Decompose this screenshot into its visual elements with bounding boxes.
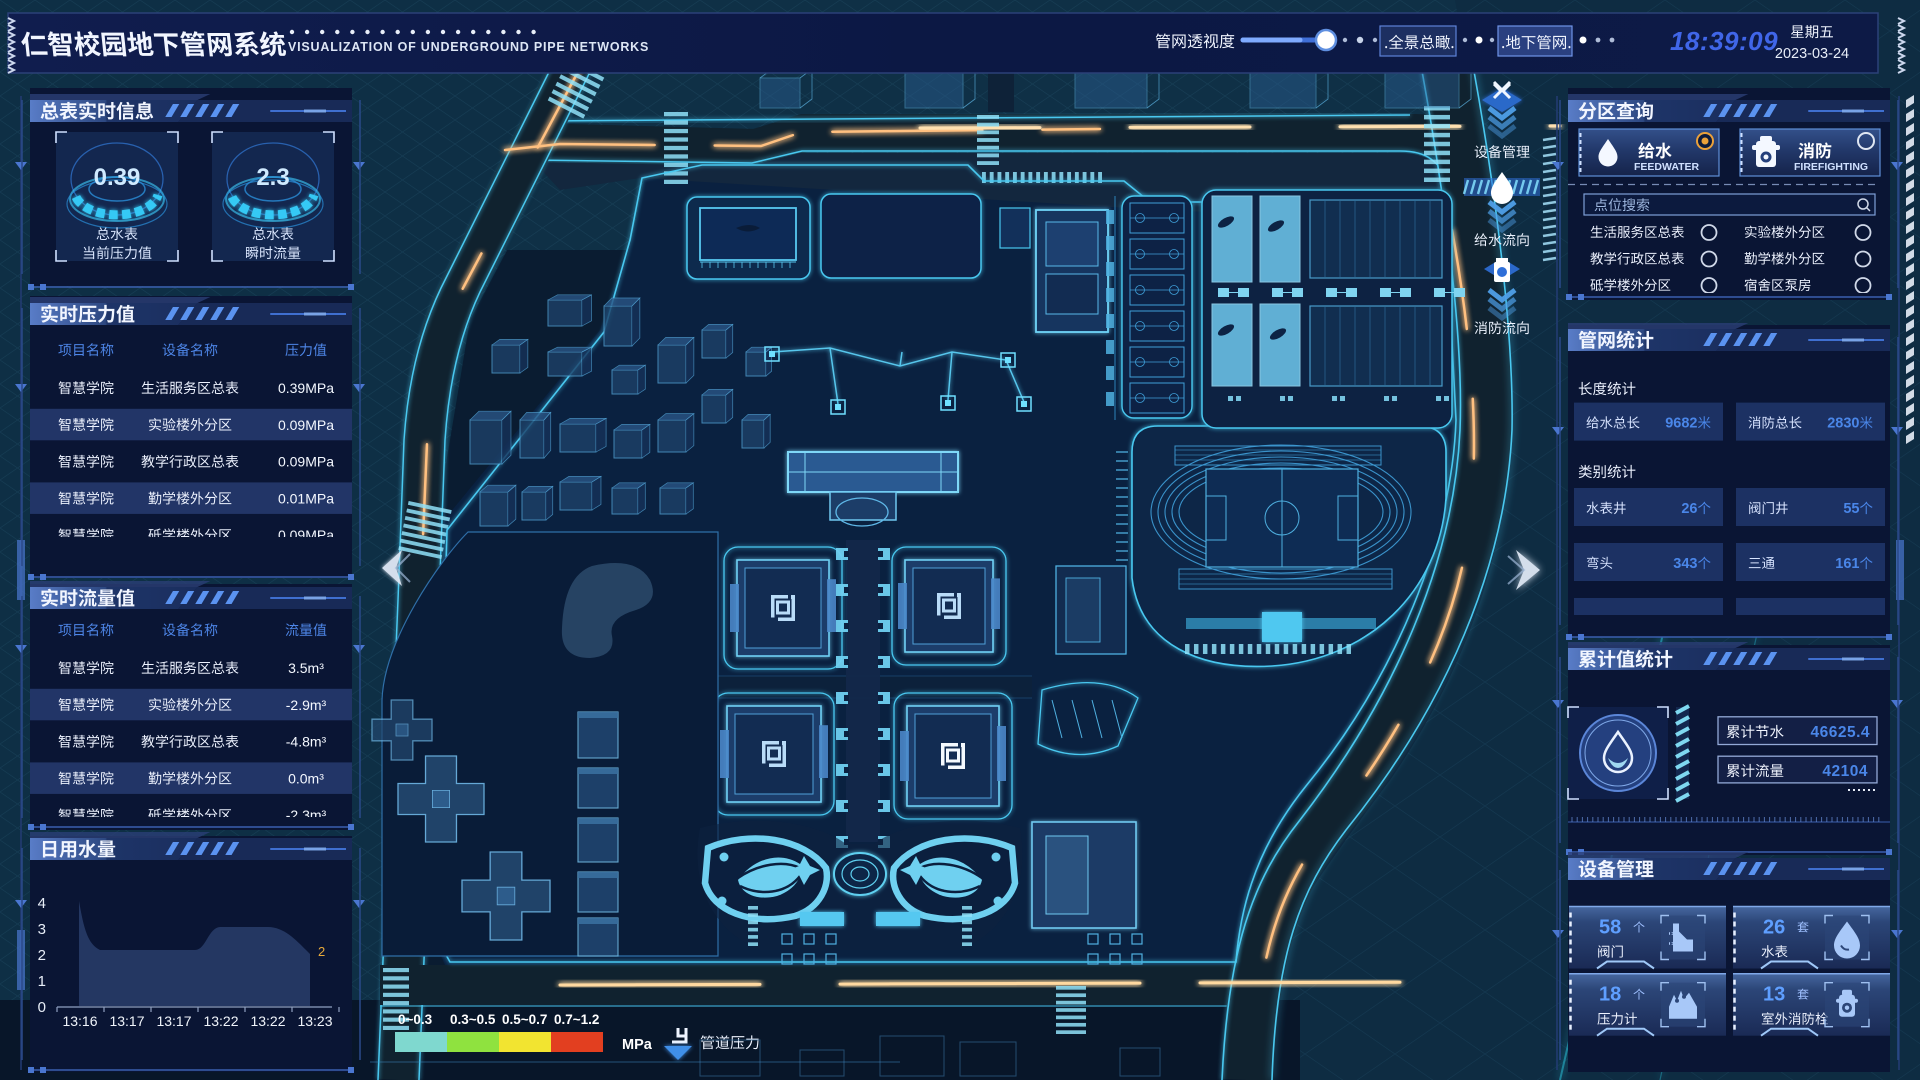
svg-text:55: 55	[1843, 501, 1859, 517]
svg-text:2: 2	[318, 944, 325, 959]
svg-text:0.7~1.2: 0.7~1.2	[554, 1012, 599, 1027]
svg-text:0.0m³: 0.0m³	[288, 770, 324, 786]
svg-text:0.09MPa: 0.09MPa	[278, 417, 334, 433]
svg-text:MPa: MPa	[622, 1037, 653, 1053]
svg-text:13:16: 13:16	[62, 1013, 97, 1029]
svg-text:13:17: 13:17	[109, 1013, 144, 1029]
svg-text:0.3~0.5: 0.3~0.5	[450, 1012, 496, 1027]
svg-text:3.5m³: 3.5m³	[288, 660, 324, 676]
svg-text:-4.8m³: -4.8m³	[286, 734, 327, 750]
svg-text:18: 18	[1599, 984, 1621, 1006]
svg-text:0.09MPa: 0.09MPa	[278, 454, 334, 470]
svg-text:13:23: 13:23	[297, 1013, 332, 1029]
svg-text:9682: 9682	[1665, 416, 1697, 432]
svg-text:18:39:09: 18:39:09	[1670, 26, 1778, 56]
svg-text:46625.4: 46625.4	[1810, 724, 1870, 741]
svg-text:3: 3	[38, 921, 46, 938]
svg-text:0~0.3: 0~0.3	[398, 1012, 433, 1027]
svg-text:2: 2	[38, 947, 46, 964]
svg-text:0.5~0.7: 0.5~0.7	[502, 1012, 547, 1027]
svg-text:161: 161	[1835, 556, 1859, 572]
svg-text:42104: 42104	[1822, 763, 1868, 780]
svg-text:13: 13	[1763, 984, 1785, 1006]
svg-text:26: 26	[1681, 501, 1697, 517]
svg-text:2023-03-24: 2023-03-24	[1775, 46, 1849, 62]
svg-text:0.01MPa: 0.01MPa	[278, 490, 334, 506]
svg-text:26: 26	[1763, 917, 1785, 939]
svg-text:13:22: 13:22	[250, 1013, 285, 1029]
svg-text:-2.9m³: -2.9m³	[286, 697, 327, 713]
svg-text:VISUALIZATION OF UNDERGROUND: VISUALIZATION OF UNDERGROUND PIPE NETWOR…	[288, 40, 649, 54]
svg-text:FEEDWATER: FEEDWATER	[1634, 161, 1700, 173]
svg-text:343: 343	[1673, 556, 1697, 572]
svg-text:1: 1	[38, 973, 46, 990]
svg-text:4: 4	[38, 895, 46, 912]
svg-text:13:22: 13:22	[203, 1013, 238, 1029]
svg-text:2.3: 2.3	[256, 164, 289, 191]
svg-text:13:17: 13:17	[156, 1013, 191, 1029]
svg-text:0.39MPa: 0.39MPa	[278, 380, 334, 396]
svg-text:FIREFIGHTING: FIREFIGHTING	[1794, 161, 1868, 173]
svg-text:58: 58	[1599, 917, 1621, 939]
svg-text:0.39: 0.39	[94, 164, 141, 191]
svg-text:0: 0	[38, 999, 46, 1016]
svg-text:2830: 2830	[1827, 416, 1859, 432]
